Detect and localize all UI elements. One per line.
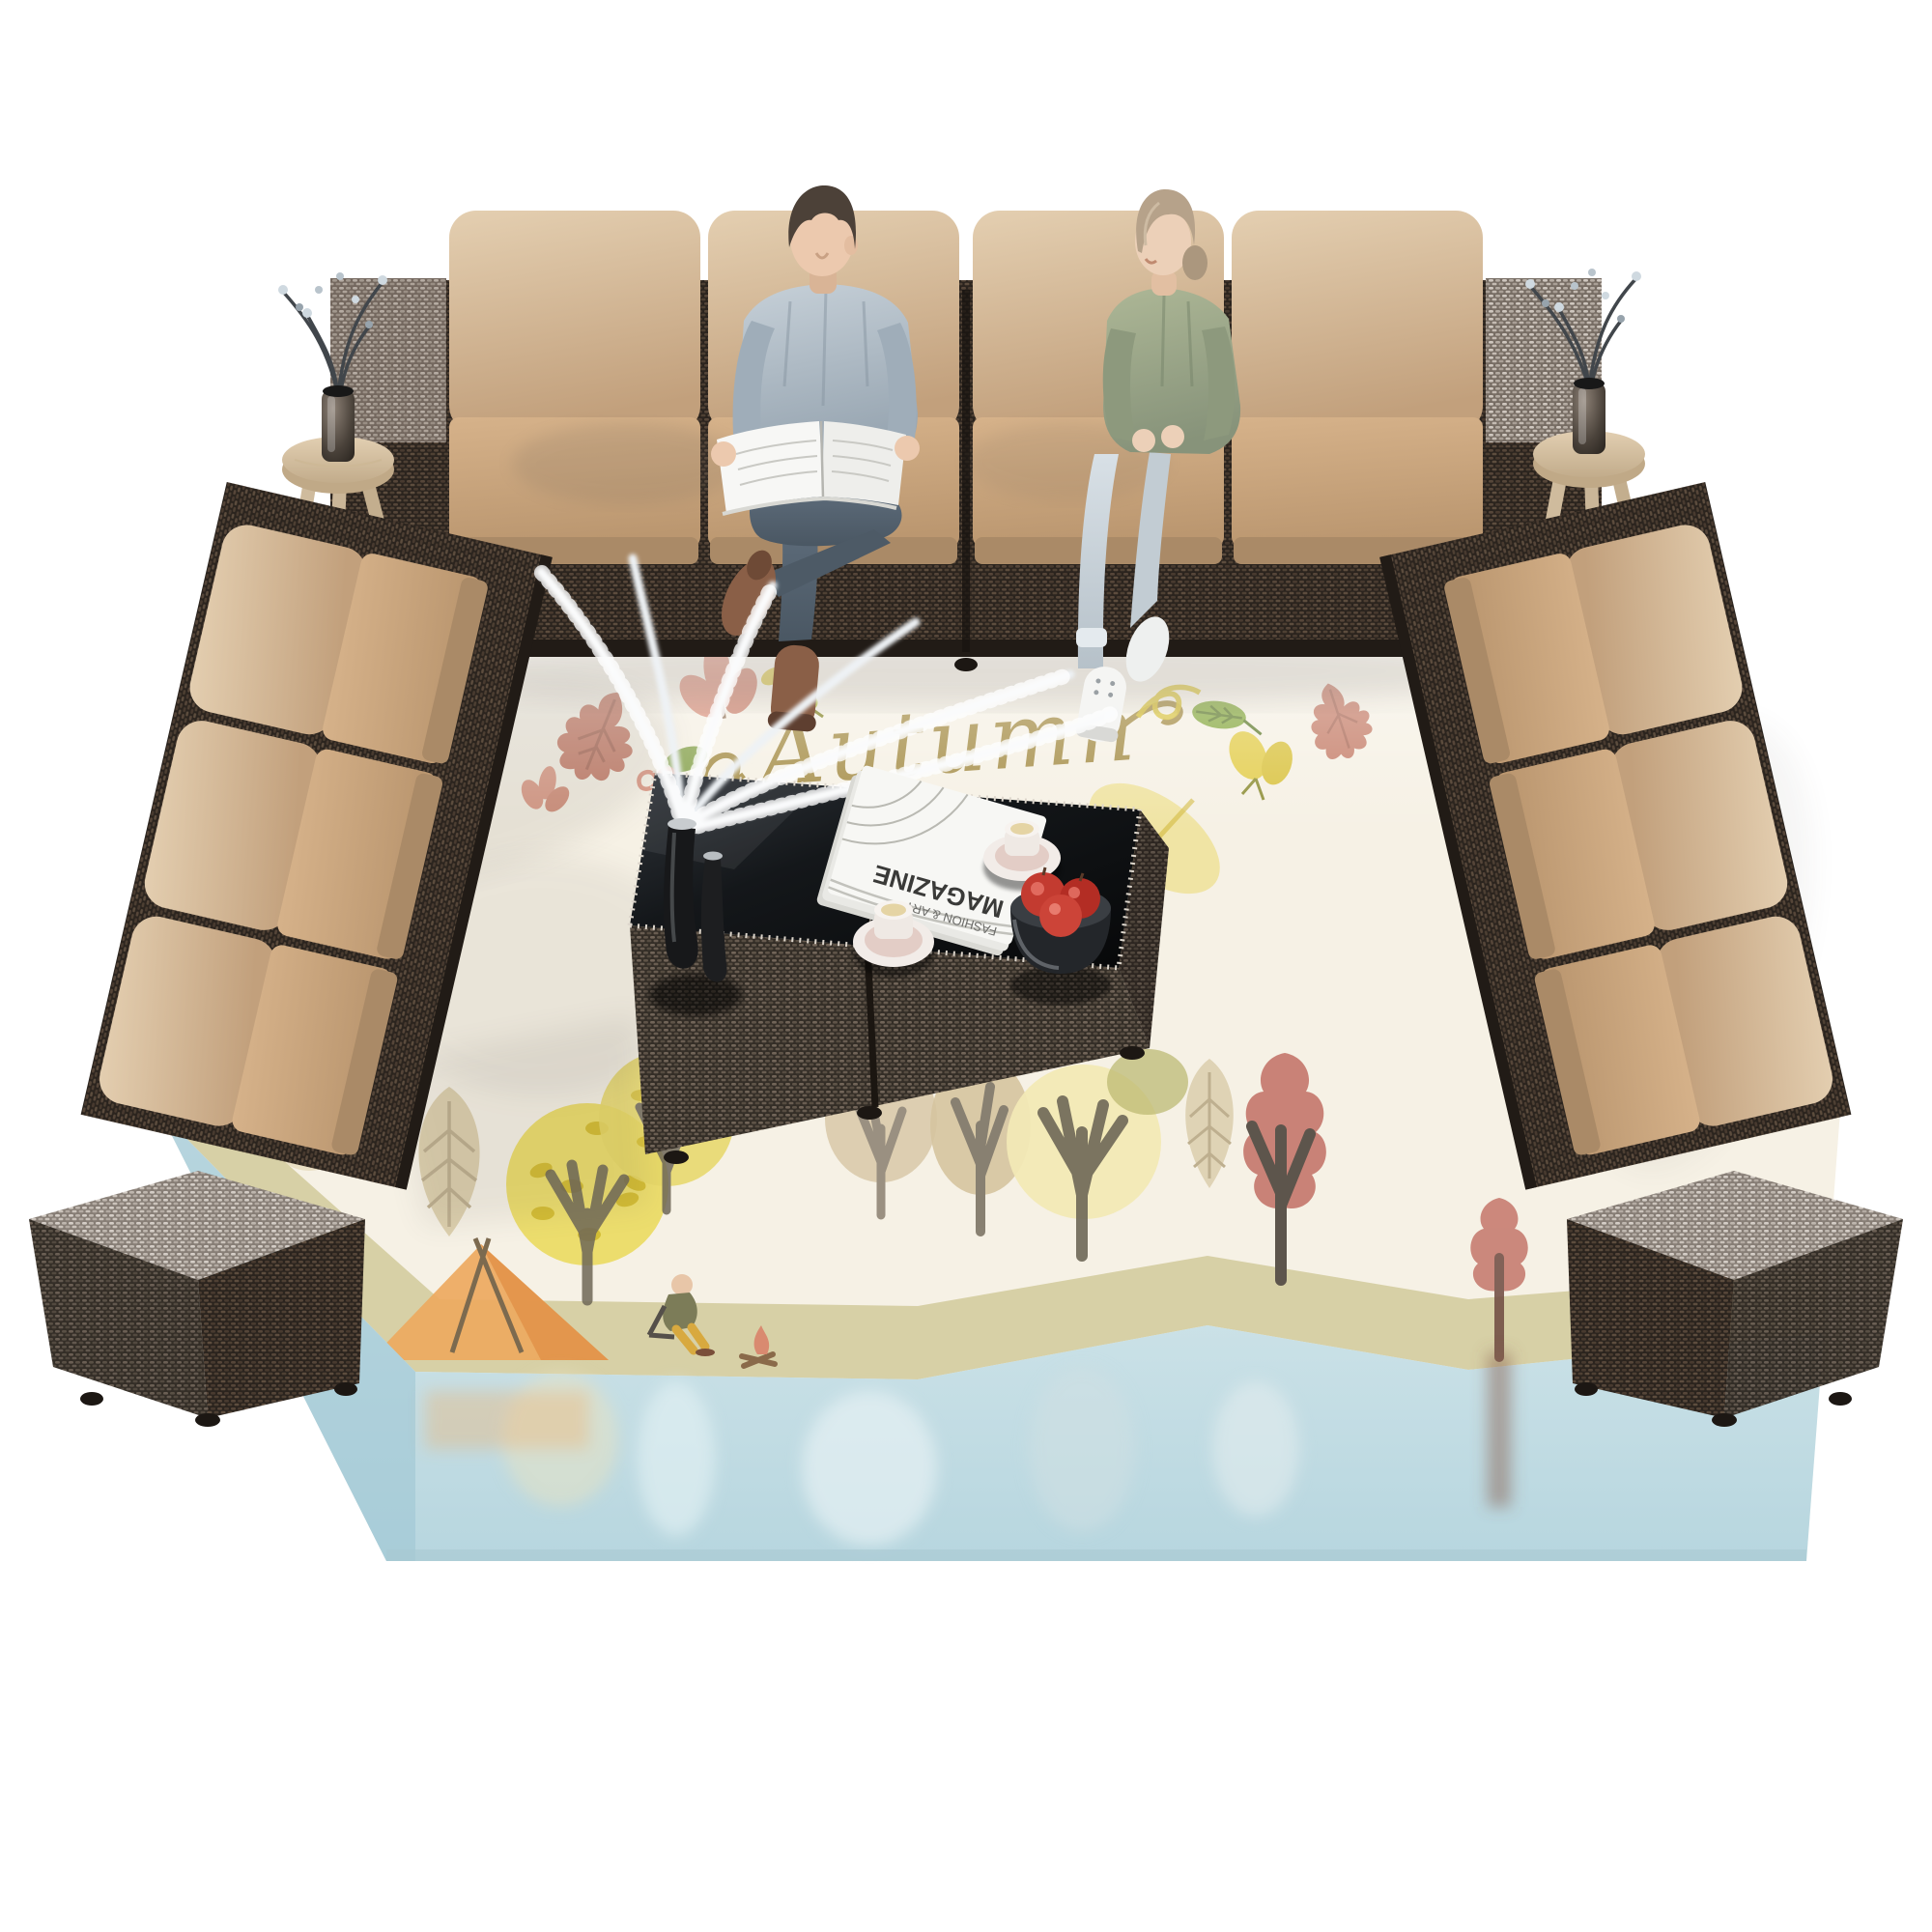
rug-bottom-edge xyxy=(386,1549,1806,1561)
table-foot xyxy=(857,1106,882,1120)
apple-bowl xyxy=(1010,867,1111,1005)
vase-highlight xyxy=(1578,388,1586,444)
table-foot xyxy=(1120,1046,1145,1060)
module-seam xyxy=(962,290,970,652)
product-photo: Autumn xyxy=(0,0,1932,1932)
table-vase-reflection xyxy=(649,974,742,1016)
tree-olive-small xyxy=(1107,1049,1188,1115)
right-stool-vase xyxy=(1573,383,1605,454)
vase-highlight xyxy=(327,396,335,452)
scene-root: Autumn xyxy=(0,0,1932,1932)
man-ear xyxy=(844,236,858,255)
back-cushion-1 xyxy=(449,211,700,433)
back-cushion-4 xyxy=(1232,211,1483,433)
seat-cushion-4 xyxy=(1232,417,1483,547)
vase-mouth xyxy=(1574,378,1605,389)
woman-right-hand xyxy=(1161,425,1184,448)
table-foot xyxy=(664,1151,689,1164)
woman-jean-cuff xyxy=(1076,628,1107,647)
left-stool-vase xyxy=(322,390,355,462)
man-right-hand xyxy=(895,436,920,461)
sofa-foot xyxy=(954,658,978,671)
woman-hair-bun xyxy=(1182,245,1207,280)
newspaper xyxy=(717,421,906,514)
man-left-hand xyxy=(711,441,736,467)
woman-left-hand xyxy=(1132,429,1155,452)
seat-shadow-man xyxy=(512,423,744,504)
vase-mouth xyxy=(323,385,354,397)
